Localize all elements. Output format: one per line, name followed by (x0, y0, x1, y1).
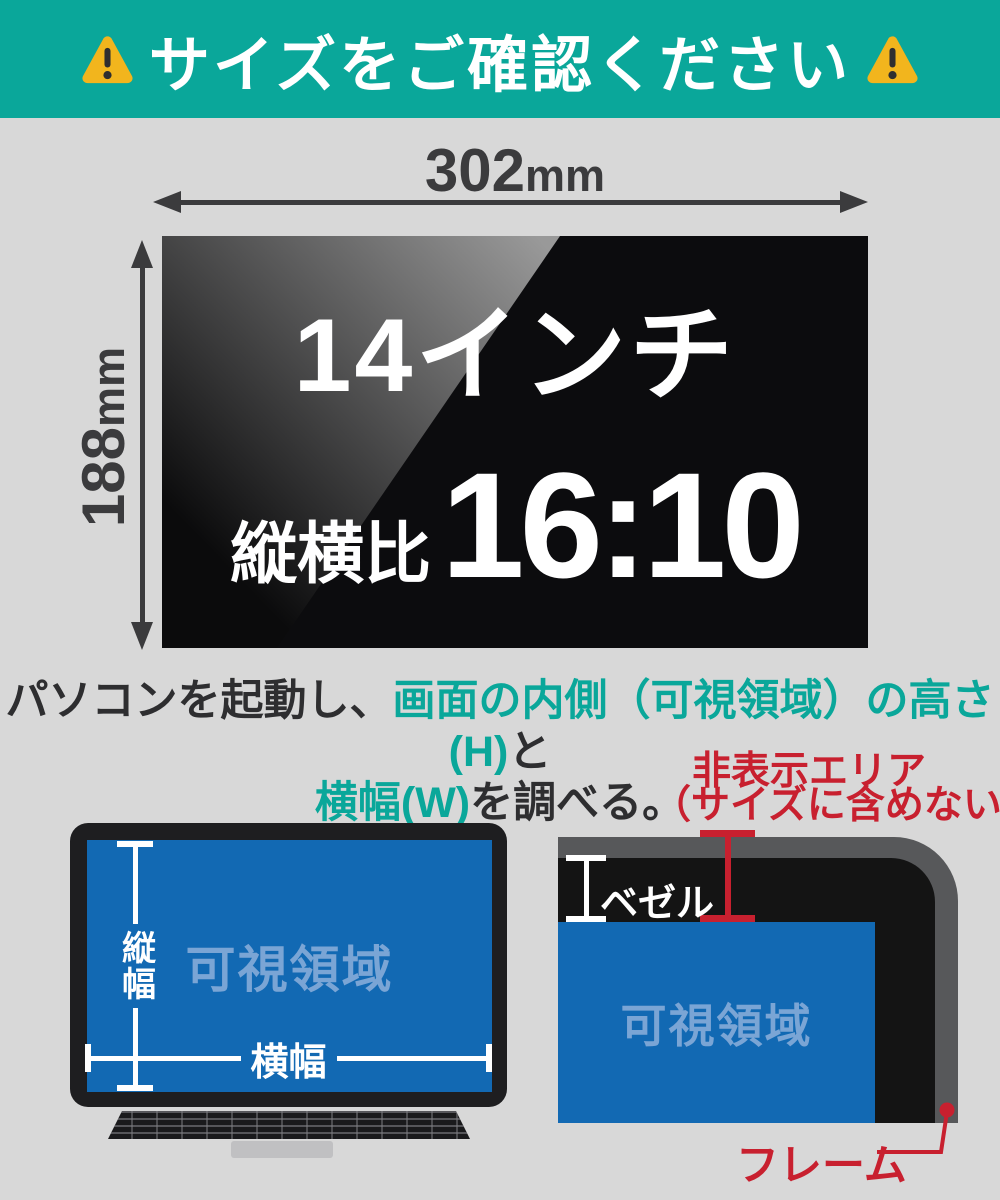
hidden-area-label-line2: （サイズに含めない） (652, 786, 1000, 826)
measure-bar (133, 847, 138, 924)
horizontal-measure-label: 横幅 (241, 1031, 337, 1086)
measure-bar (91, 1056, 241, 1061)
screen-size-panel: 14インチ 縦横比 16:10 (162, 236, 868, 648)
vertical-dimension-arrow (131, 240, 153, 650)
instruction-l1-black: パソコンを起動し、 (6, 677, 393, 725)
horizontal-dimension-arrow (153, 191, 868, 213)
arrow-shaft (169, 200, 852, 205)
height-value: 188 (70, 427, 137, 527)
aspect-ratio-prefix: 縦横比 (230, 521, 431, 588)
size-confirmation-infographic: サイズをご確認ください 302mm 188mm 14インチ 縦横比 16:10 … (0, 0, 1000, 1200)
visible-area-label: 可視領域 (186, 930, 394, 1002)
warning-triangle-icon (864, 28, 921, 91)
arrow-head-right (840, 191, 868, 213)
height-dimension-label: 188mm (73, 287, 135, 587)
instruction-l1-suffix: と (508, 728, 551, 776)
measure-bar (337, 1056, 487, 1061)
measure-bar (584, 861, 589, 916)
aspect-ratio-value: 16:10 (441, 450, 800, 600)
laptop-keyboard (108, 1111, 470, 1139)
vertical-measure-label: 縦幅 (117, 924, 154, 1008)
arrow-head-bottom (131, 622, 153, 650)
horizontal-measure-line: 横幅 (85, 1044, 492, 1072)
laptop-trackpad (231, 1141, 333, 1158)
frame-leader-line (870, 1098, 960, 1160)
measure-cap (117, 1085, 153, 1091)
bezel-label: ベゼル (600, 872, 714, 927)
visible-area-label: 可視領域 (621, 990, 813, 1056)
measure-cap (700, 830, 755, 837)
aspect-ratio-row: 縦横比 16:10 (162, 450, 868, 600)
arrow-shaft (140, 256, 145, 634)
screen-size-text: 14インチ (162, 304, 868, 408)
height-unit: mm (83, 347, 134, 427)
warning-triangle-icon (79, 28, 136, 91)
measure-cap (486, 1044, 492, 1072)
banner-title: サイズをご確認ください (149, 15, 851, 104)
corner-screen: 可視領域 (558, 922, 875, 1123)
instruction-l2-teal: 横幅(W) (315, 779, 470, 827)
measure-bar (725, 837, 731, 915)
warning-banner: サイズをご確認ください (0, 0, 1000, 118)
